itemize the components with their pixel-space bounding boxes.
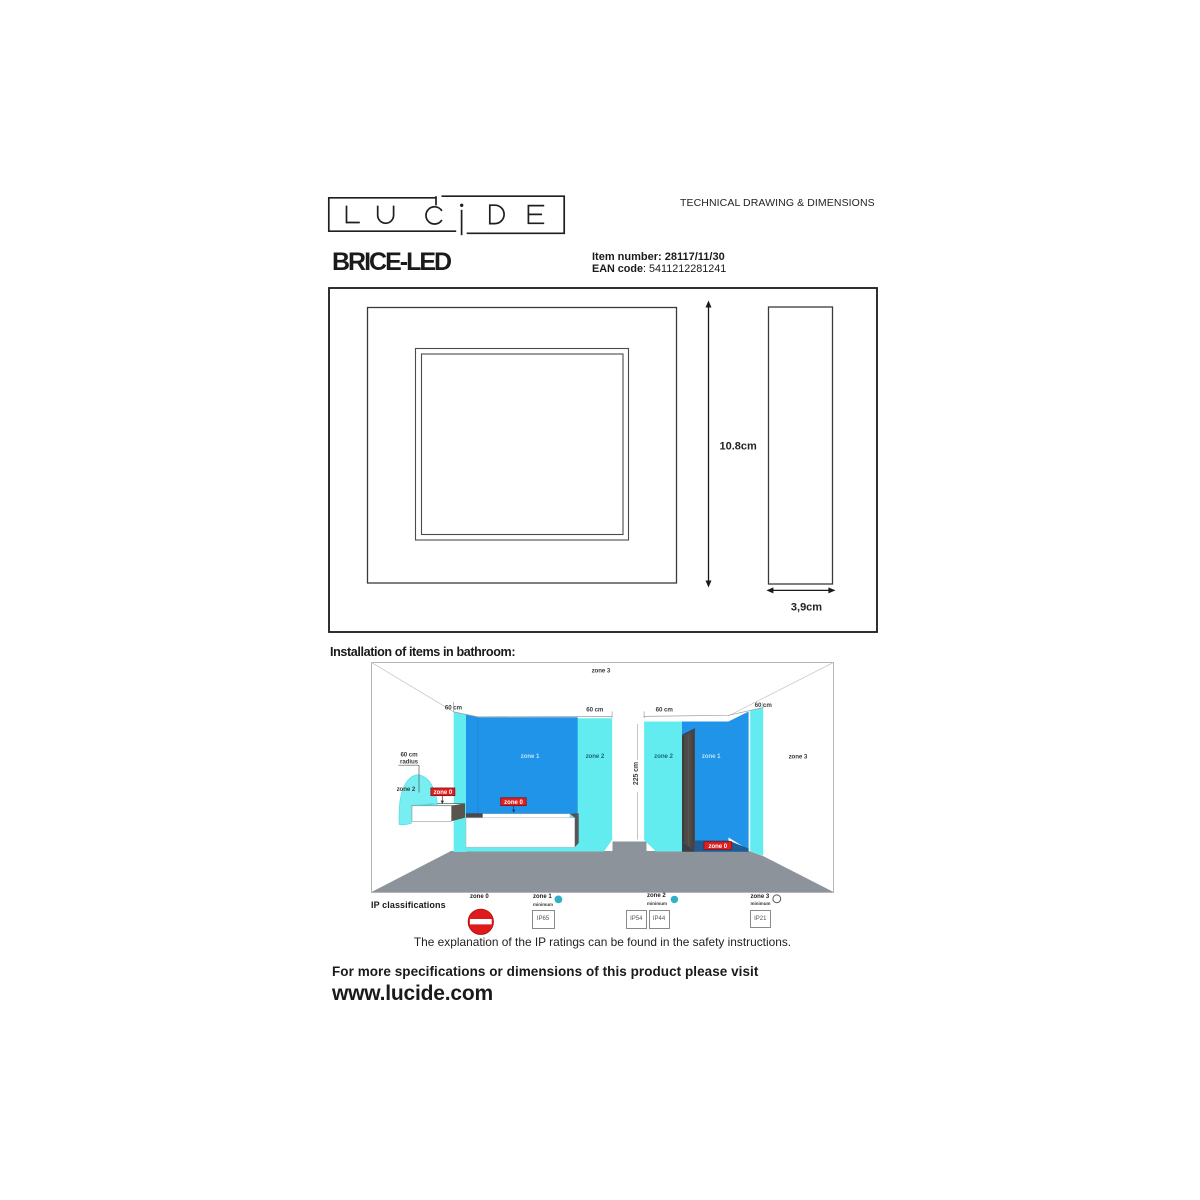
svg-text:zone 3: zone 3: [592, 668, 611, 675]
svg-text:zone 0: zone 0: [434, 790, 453, 796]
svg-text:zone 3: zone 3: [789, 754, 808, 761]
svg-text:zone 0: zone 0: [708, 844, 727, 850]
svg-text:zone 2: zone 2: [654, 753, 673, 760]
svg-text:3,9cm: 3,9cm: [791, 602, 822, 614]
svg-text:60 cm: 60 cm: [445, 704, 463, 711]
svg-text:10.8cm: 10.8cm: [720, 441, 758, 453]
svg-text:60 cm: 60 cm: [586, 707, 604, 714]
svg-text:60 cm: 60 cm: [755, 702, 773, 709]
svg-text:zone 0: zone 0: [504, 800, 523, 806]
svg-text:zone 1: zone 1: [702, 753, 721, 760]
svg-text:225 cm: 225 cm: [633, 762, 640, 785]
svg-text:zone 2: zone 2: [586, 753, 605, 760]
svg-text:radius: radius: [400, 758, 419, 765]
svg-text:60 cm: 60 cm: [656, 707, 674, 714]
svg-text:zone 1: zone 1: [521, 753, 540, 760]
svg-text:zone 2: zone 2: [397, 786, 416, 793]
